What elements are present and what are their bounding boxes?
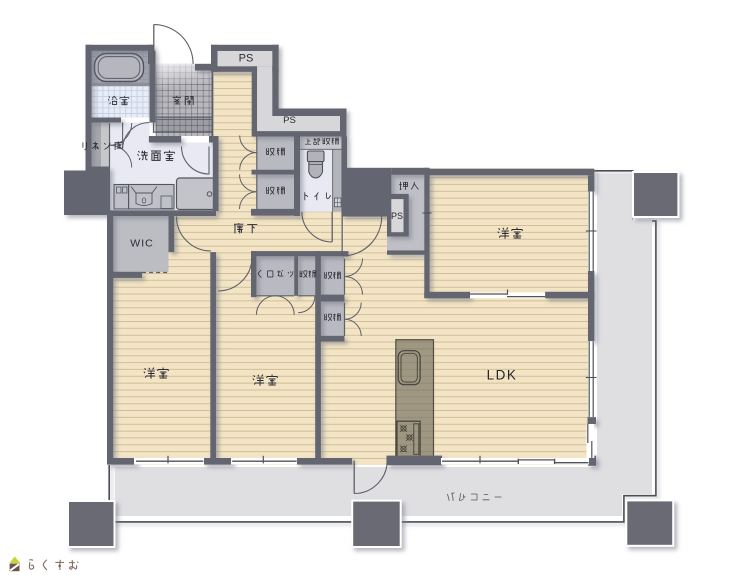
- svg-text:WIC: WIC: [130, 238, 153, 250]
- svg-text:PS: PS: [283, 115, 296, 126]
- svg-text:LDK: LDK: [487, 368, 518, 383]
- svg-text:PS: PS: [391, 211, 403, 221]
- svg-text:PS: PS: [239, 53, 254, 65]
